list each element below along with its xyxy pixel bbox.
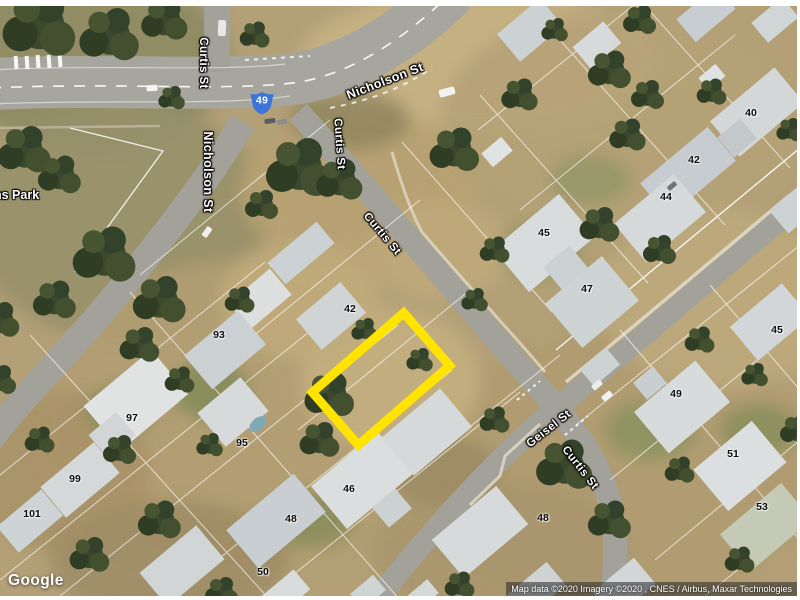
satellite-imagery xyxy=(0,0,800,600)
map-attribution: Map data ©2020 Imagery ©2020 , CNES / Ai… xyxy=(506,582,797,596)
satellite-map[interactable]: ns Park 49 Curtis StNicholson StNicholso… xyxy=(0,0,800,600)
photo-border-top xyxy=(0,0,800,6)
photo-border-bottom xyxy=(0,596,800,600)
google-logo[interactable]: Google xyxy=(8,572,64,590)
listing-photo: ns Park 49 Curtis StNicholson StNicholso… xyxy=(0,0,800,600)
